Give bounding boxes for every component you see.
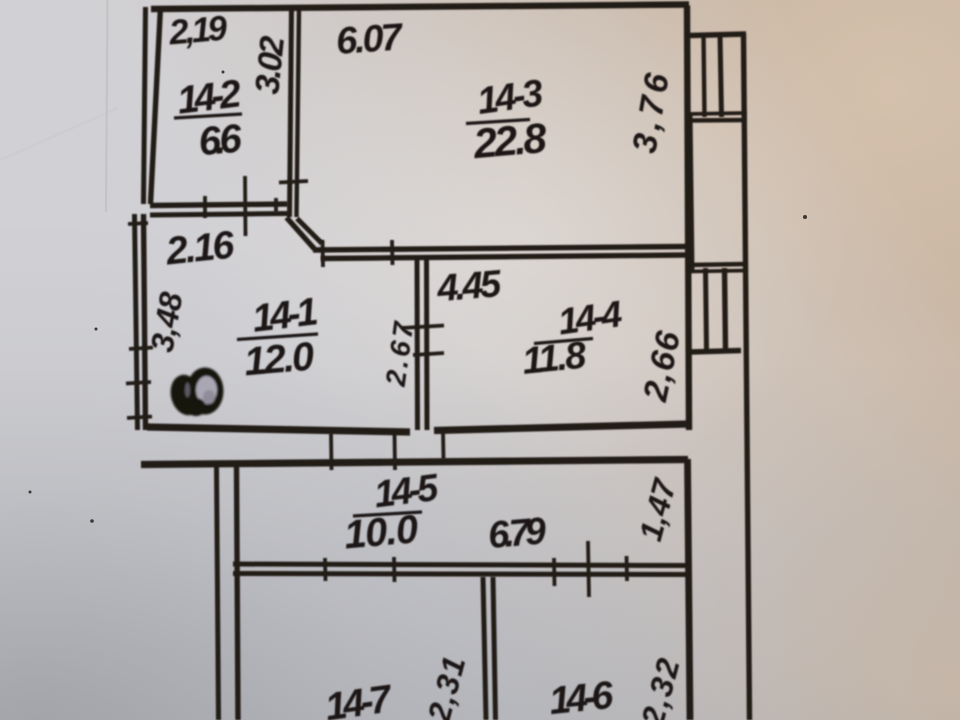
svg-text:6.07: 6.07: [335, 16, 406, 63]
svg-text:4.45: 4.45: [434, 263, 503, 311]
svg-text:14-6: 14-6: [547, 674, 615, 720]
svg-text:3.02: 3.02: [248, 34, 292, 96]
svg-text:6.79: 6.79: [486, 510, 547, 557]
svg-text:12.0: 12.0: [242, 334, 316, 384]
svg-text:2.16: 2.16: [163, 224, 236, 274]
svg-text:2,19: 2,19: [167, 8, 230, 52]
svg-text:6.6: 6.6: [197, 117, 244, 165]
